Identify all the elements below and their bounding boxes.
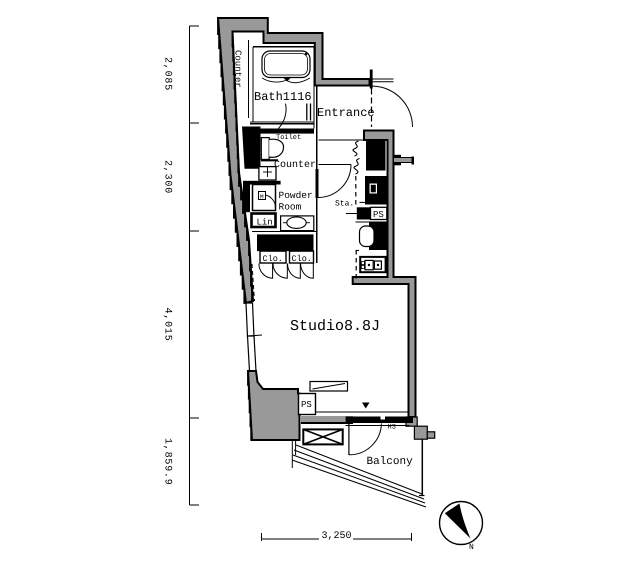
svg-text:Studio8.8J: Studio8.8J (290, 318, 380, 335)
svg-text:Entrance: Entrance (317, 106, 375, 120)
svg-text:Bath1116: Bath1116 (254, 90, 312, 104)
svg-text:2,300: 2,300 (162, 160, 173, 194)
svg-text:N: N (469, 543, 474, 552)
svg-text:PS: PS (301, 400, 312, 410)
svg-text:M: M (260, 194, 264, 201)
svg-text:Counter: Counter (233, 50, 243, 88)
svg-text:3,250: 3,250 (322, 531, 352, 542)
svg-text:2,085: 2,085 (162, 57, 173, 91)
svg-text:Toilet: Toilet (276, 133, 301, 142)
svg-text:4,015: 4,015 (162, 308, 173, 342)
svg-text:Room: Room (279, 202, 302, 213)
svg-text:Lin: Lin (257, 218, 273, 228)
svg-text:1,859.9: 1,859.9 (162, 438, 173, 486)
svg-text:H3: H3 (388, 424, 396, 432)
svg-text:Clo.: Clo. (263, 254, 283, 264)
svg-text:PS: PS (373, 210, 384, 220)
svg-text:Clo.: Clo. (292, 254, 312, 264)
svg-text:Powder: Powder (279, 190, 313, 201)
svg-text:Balcony: Balcony (367, 456, 414, 468)
svg-text:Counter: Counter (274, 160, 316, 171)
svg-text:Sta.: Sta. (335, 200, 354, 209)
